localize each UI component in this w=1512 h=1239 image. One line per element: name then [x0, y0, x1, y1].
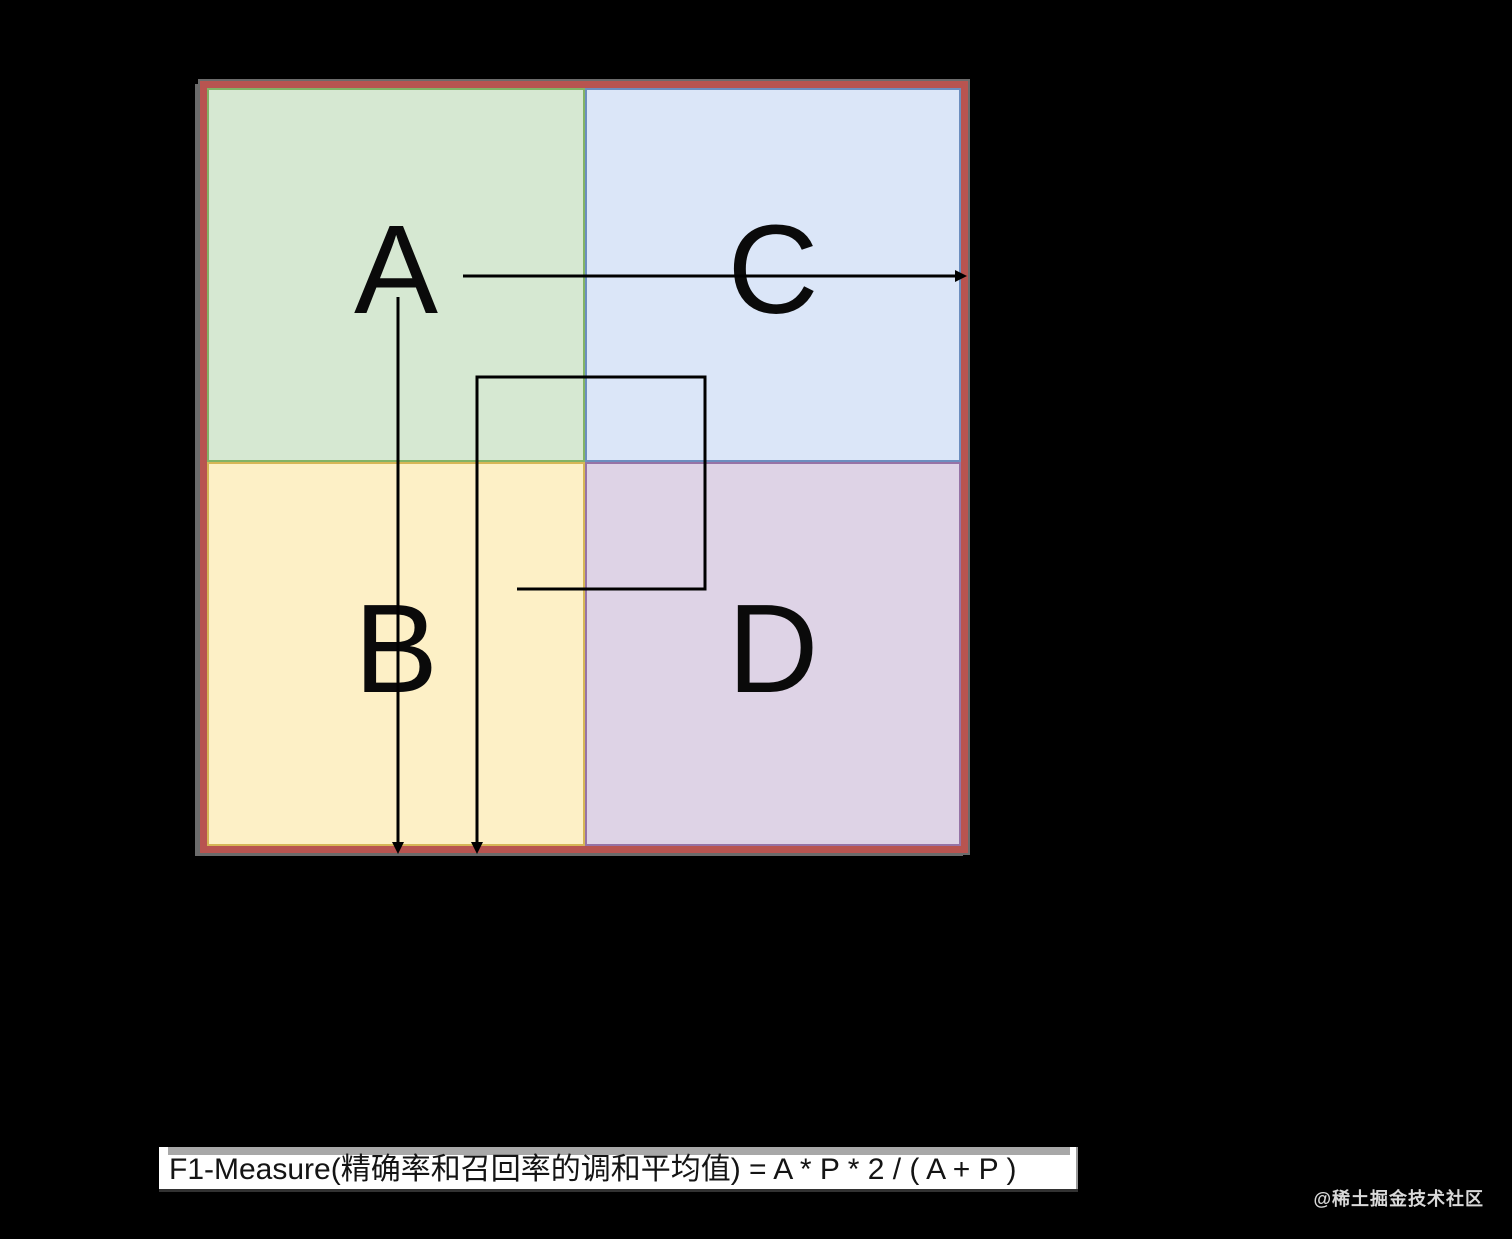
quadrant-c: C [585, 88, 961, 462]
quadrant-d-label: D [728, 586, 819, 712]
quadrant-d: D [585, 462, 961, 846]
quadrant-a-label: A [354, 207, 438, 333]
formula-bar: F1-Measure(精确率和召回率的调和平均值) = A * P * 2 / … [159, 1147, 1078, 1189]
formula-text: F1-Measure(精确率和召回率的调和平均值) = A * P * 2 / … [169, 1151, 1016, 1189]
canvas: A C B D F1-Measure(精确率和召回率的调和平均值) = A * … [0, 0, 1512, 1239]
quadrant-a: A [207, 88, 585, 462]
confusion-matrix-square: A C B D [200, 81, 968, 853]
quadrant-b-label: B [354, 586, 438, 712]
watermark: @稀土掘金技术社区 [1313, 1185, 1484, 1211]
quadrant-c-label: C [728, 207, 819, 333]
quadrant-b: B [207, 462, 585, 846]
quadrant-grid: A C B D [207, 88, 961, 846]
